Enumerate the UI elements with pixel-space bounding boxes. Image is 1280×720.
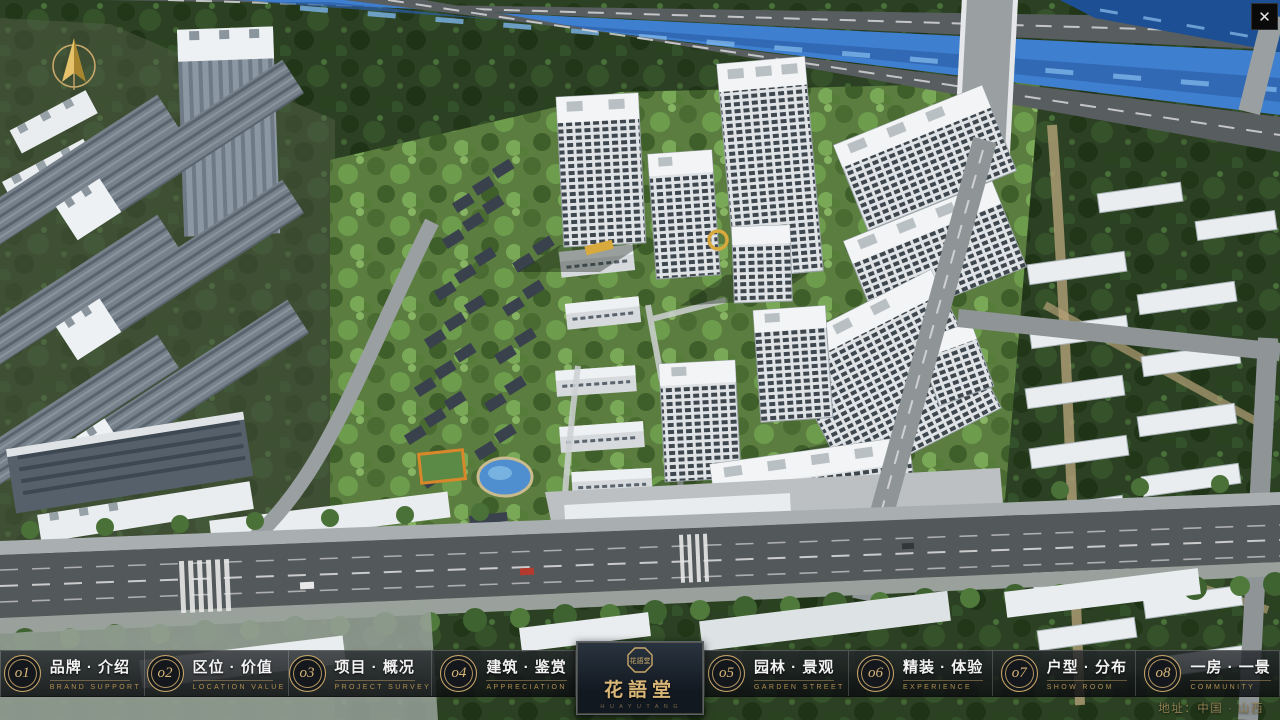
bottom-navbar: o1 品牌 · 介绍BRAND SUPPORT o2 区位 · 价值LOCATI…	[0, 650, 1280, 697]
nav-badge: o3	[289, 655, 326, 692]
nav-label-zh: 一房 · 一景	[1190, 656, 1270, 681]
nav-label-zh: 项目 · 概况	[335, 656, 415, 681]
pond	[478, 458, 532, 496]
nav-item-o5[interactable]: o5 园林 · 景观GARDEN STREET	[705, 651, 848, 696]
nav-item-o2[interactable]: o2 区位 · 价值LOCATION VALUE	[144, 651, 288, 696]
compass-icon	[46, 26, 102, 98]
nav-badge: o4	[440, 655, 477, 692]
nav-item-o1[interactable]: o1 品牌 · 介绍BRAND SUPPORT	[1, 651, 144, 696]
nav-item-o6[interactable]: o6 精装 · 体验EXPERIENCE	[848, 651, 992, 696]
address-text: 地址：中国 · 山西	[1158, 700, 1264, 716]
nav-badge: o7	[1001, 655, 1038, 692]
nav-item-o8[interactable]: o8 一房 · 一景COMMUNITY	[1135, 651, 1279, 696]
nav-item-o7[interactable]: o7 户型 · 分布SHOW ROOM	[992, 651, 1136, 696]
brand-title: 花語堂	[604, 675, 676, 702]
nav-badge: o8	[1144, 655, 1181, 692]
close-button[interactable]: ✕	[1251, 3, 1278, 30]
nav-group-right: o5 园林 · 景观GARDEN STREET o6 精装 · 体验EXPERI…	[704, 650, 1280, 697]
nav-group-left: o1 品牌 · 介绍BRAND SUPPORT o2 区位 · 价值LOCATI…	[0, 650, 576, 697]
nav-number: o5	[719, 665, 734, 682]
brand-subtitle: H U A Y U T A N G	[600, 704, 679, 710]
nav-label-en: LOCATION VALUE	[193, 684, 286, 691]
nav-label-zh: 建筑 · 鉴赏	[486, 656, 566, 681]
nav-item-o3[interactable]: o3 项目 · 概况PROJECT SURVEY	[288, 651, 432, 696]
nav-badge: o2	[147, 655, 184, 692]
nav-label-en: PROJECT SURVEY	[335, 684, 432, 691]
nav-number: o8	[1155, 665, 1170, 682]
nav-number: o2	[158, 665, 173, 682]
nav-number: o1	[15, 665, 30, 682]
nav-label-en: BRAND SUPPORT	[50, 684, 141, 691]
nav-label-en: GARDEN STREET	[754, 684, 845, 691]
nav-number: o3	[300, 665, 315, 682]
nav-number: o6	[868, 665, 883, 682]
nav-label-zh: 品牌 · 介绍	[50, 656, 130, 681]
brand-logo-panel[interactable]: 花語堂 花語堂 H U A Y U T A N G	[576, 641, 704, 715]
nav-badge: o1	[4, 655, 41, 692]
svg-text:花語堂: 花語堂	[630, 656, 651, 665]
close-icon: ✕	[1258, 8, 1271, 26]
nav-label-zh: 户型 · 分布	[1047, 656, 1127, 681]
nav-label-zh: 精装 · 体验	[903, 656, 983, 681]
nav-badge: o5	[708, 655, 745, 692]
nav-number: o4	[451, 665, 466, 682]
brand-emblem-icon: 花語堂	[627, 647, 653, 673]
nav-label-zh: 区位 · 价值	[193, 656, 273, 681]
app-window: ✕ o1 品牌 · 介绍BRAND SUPPORT o2 区位 · 价值LOCA…	[0, 0, 1280, 720]
nav-label-en: EXPERIENCE	[903, 684, 972, 691]
nav-number: o7	[1012, 665, 1027, 682]
nav-label-en: APPRECIATION	[486, 684, 566, 691]
nav-label-en: SHOW ROOM	[1047, 684, 1114, 691]
nav-item-o4[interactable]: o4 建筑 · 鉴赏APPRECIATION	[431, 651, 575, 696]
nav-label-en: COMMUNITY	[1190, 684, 1255, 691]
nav-badge: o6	[857, 655, 894, 692]
nav-label-zh: 园林 · 景观	[754, 656, 834, 681]
master-plan-render	[0, 0, 1280, 720]
